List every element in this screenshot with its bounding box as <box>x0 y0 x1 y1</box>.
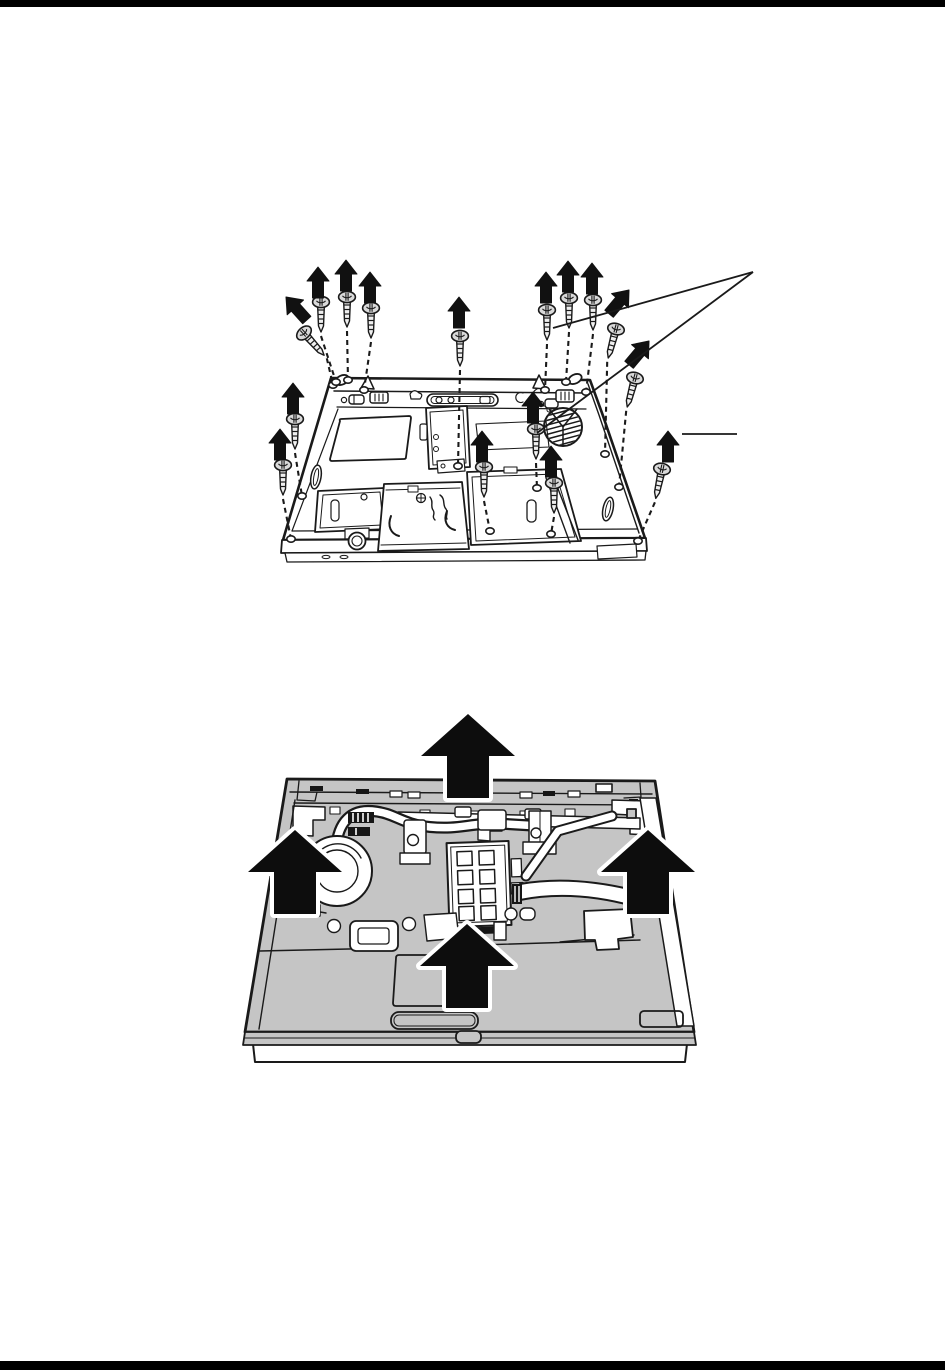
screw-hole <box>298 493 306 499</box>
docking-slot <box>427 394 498 406</box>
screw-icon <box>619 370 644 409</box>
screw-hole <box>486 528 494 534</box>
screw-hole <box>287 536 295 542</box>
screw-guide-dashline <box>347 331 348 380</box>
screw-icon <box>539 304 556 340</box>
removal-arrow-icon <box>448 297 470 328</box>
screw-hole <box>541 387 549 393</box>
figure-bottom-screws <box>281 372 647 562</box>
removal-arrow-icon <box>557 261 579 292</box>
callout-line <box>553 272 753 328</box>
removal-arrow-icon <box>278 290 315 328</box>
screw-icon <box>585 294 602 330</box>
screw-hole <box>344 377 352 383</box>
screw-hole <box>601 451 609 457</box>
screw-icon <box>275 459 292 495</box>
figure-cover-removal <box>243 779 696 1062</box>
removal-arrow-icon <box>601 283 638 321</box>
removal-arrow-icon <box>282 383 304 414</box>
latch-slot <box>527 500 536 522</box>
screw-hole <box>615 484 623 490</box>
removal-arrow-icon <box>535 272 557 303</box>
removal-arrow-icon <box>307 267 329 298</box>
base-plate <box>253 1044 687 1062</box>
battery-cover <box>330 416 411 461</box>
manual-page <box>0 0 945 1370</box>
screw-removal-group <box>581 263 603 395</box>
optical-drive-bay <box>378 482 469 551</box>
screw-icon <box>339 291 356 327</box>
screw-hole <box>533 485 541 491</box>
screw-hole <box>454 463 462 469</box>
screw-icon <box>287 413 304 449</box>
screw-removal-group <box>335 260 357 383</box>
removal-arrow-icon <box>657 431 679 462</box>
screw-icon <box>363 302 380 338</box>
screw-icon <box>294 323 330 361</box>
screw-icon <box>452 330 469 366</box>
removal-arrow-icon <box>335 260 357 291</box>
screw-guide-dashline <box>566 332 569 382</box>
removal-arrow-icon <box>581 263 603 294</box>
display-latch <box>456 1031 481 1043</box>
screw-icon <box>313 296 330 332</box>
removal-arrow-icon <box>359 272 381 303</box>
screw-hole <box>332 379 340 385</box>
removal-arrow-icon <box>269 429 291 460</box>
screw-hole <box>562 379 570 385</box>
screw-icon <box>600 321 625 360</box>
round-cap <box>349 533 366 550</box>
screw-guide-dashline <box>321 336 336 382</box>
screw-hole <box>634 538 642 544</box>
screw-hole <box>360 387 368 393</box>
page-illustrations <box>0 0 945 1370</box>
screw-removal-group <box>359 272 381 393</box>
screw-hole <box>547 531 555 537</box>
screw-removal-group <box>307 267 340 385</box>
screw-icon <box>648 462 672 500</box>
screw-removal-group <box>615 334 658 490</box>
